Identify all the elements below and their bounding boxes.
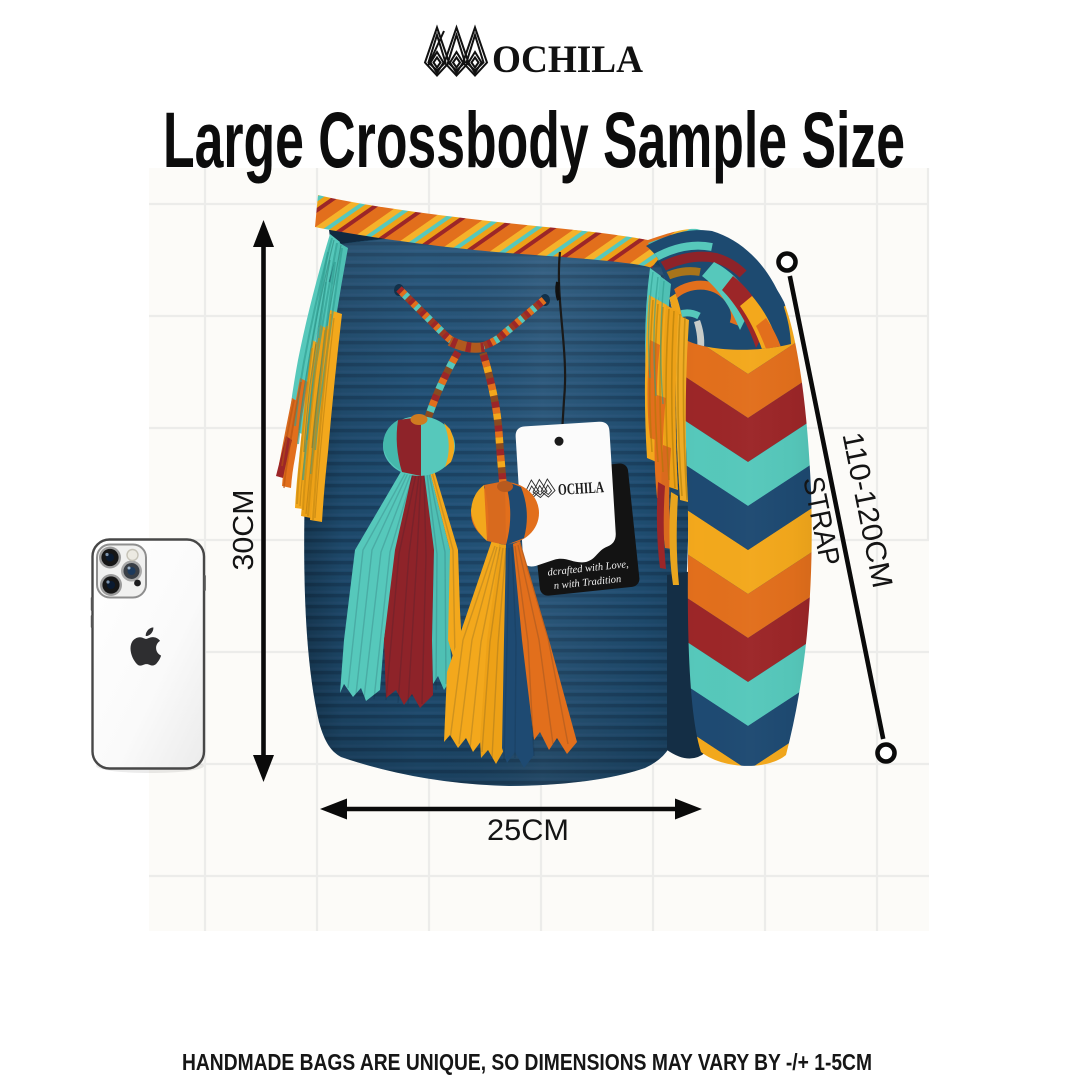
svg-text:25CM: 25CM: [487, 814, 569, 847]
svg-text:OCHILA: OCHILA: [557, 479, 604, 499]
svg-text:HANDMADE BAGS ARE UNIQUE, SO D: HANDMADE BAGS ARE UNIQUE, SO DIMENSIONS …: [182, 1049, 872, 1075]
svg-text:30CM: 30CM: [228, 490, 260, 571]
svg-text:OCHILA: OCHILA: [492, 38, 643, 81]
svg-text:Large Crossbody Sample Size: Large Crossbody Sample Size: [163, 95, 905, 184]
